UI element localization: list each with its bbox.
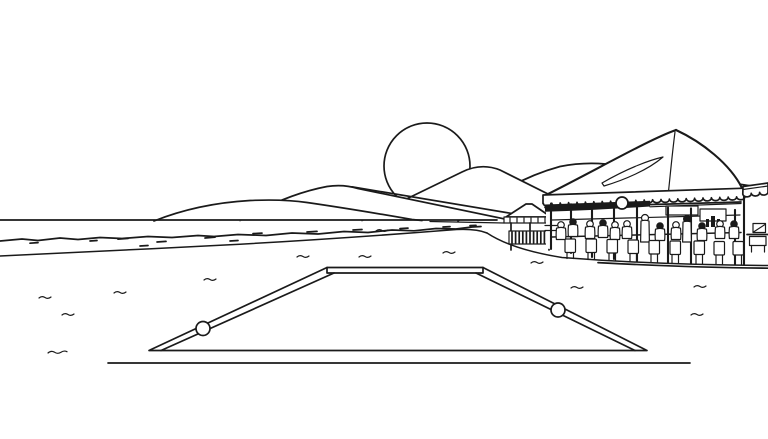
patron	[622, 221, 632, 239]
beach-scene-drawing: Black-and-white line drawing of a beach …	[0, 0, 768, 439]
lantern-icon	[616, 197, 628, 209]
patron	[585, 221, 595, 239]
patron	[697, 223, 707, 241]
patron	[556, 222, 566, 240]
patron	[598, 220, 608, 238]
patron	[729, 221, 739, 239]
patron	[655, 223, 665, 241]
patron	[715, 221, 725, 239]
menu-board-1	[666, 206, 698, 215]
bartender	[683, 216, 692, 243]
rail-ball-right	[551, 303, 565, 317]
patron	[568, 219, 578, 237]
patron	[671, 222, 681, 240]
rail-ball-left	[196, 322, 210, 336]
illustration-stage: Black-and-white line drawing of a beach …	[0, 0, 768, 439]
bartender	[641, 215, 650, 243]
patron	[610, 222, 620, 240]
gazebo-fascia	[504, 217, 553, 223]
